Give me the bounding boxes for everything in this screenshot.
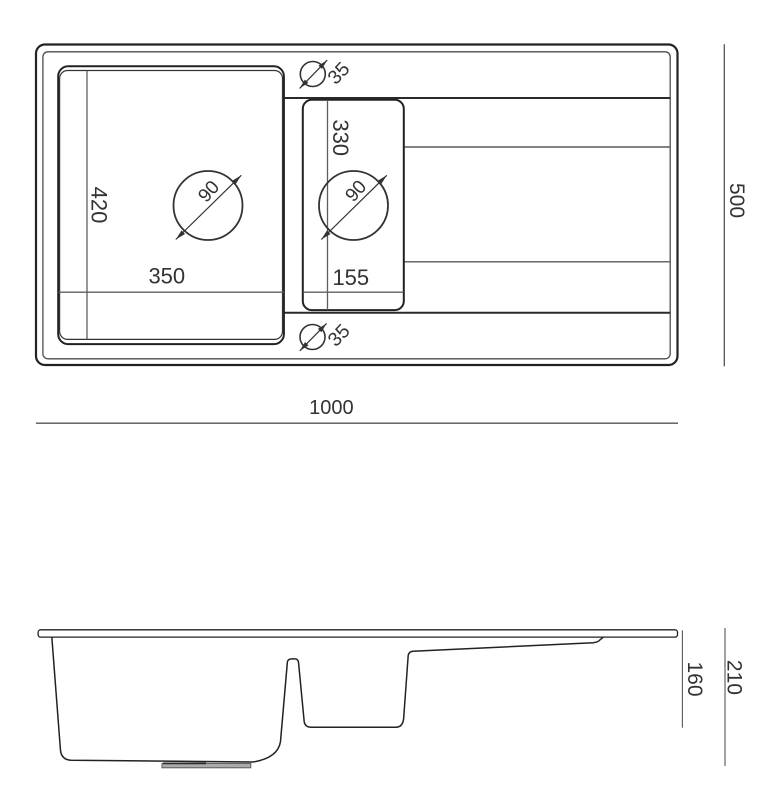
svg-text:210: 210 [723,660,746,695]
svg-text:155: 155 [332,265,369,290]
svg-text:35: 35 [323,58,354,89]
svg-text:330: 330 [328,119,353,156]
svg-text:35: 35 [324,320,355,351]
svg-text:420: 420 [86,187,111,224]
svg-text:350: 350 [148,264,185,289]
svg-text:160: 160 [683,661,706,696]
svg-text:1000: 1000 [309,397,354,419]
svg-text:500: 500 [725,183,748,218]
